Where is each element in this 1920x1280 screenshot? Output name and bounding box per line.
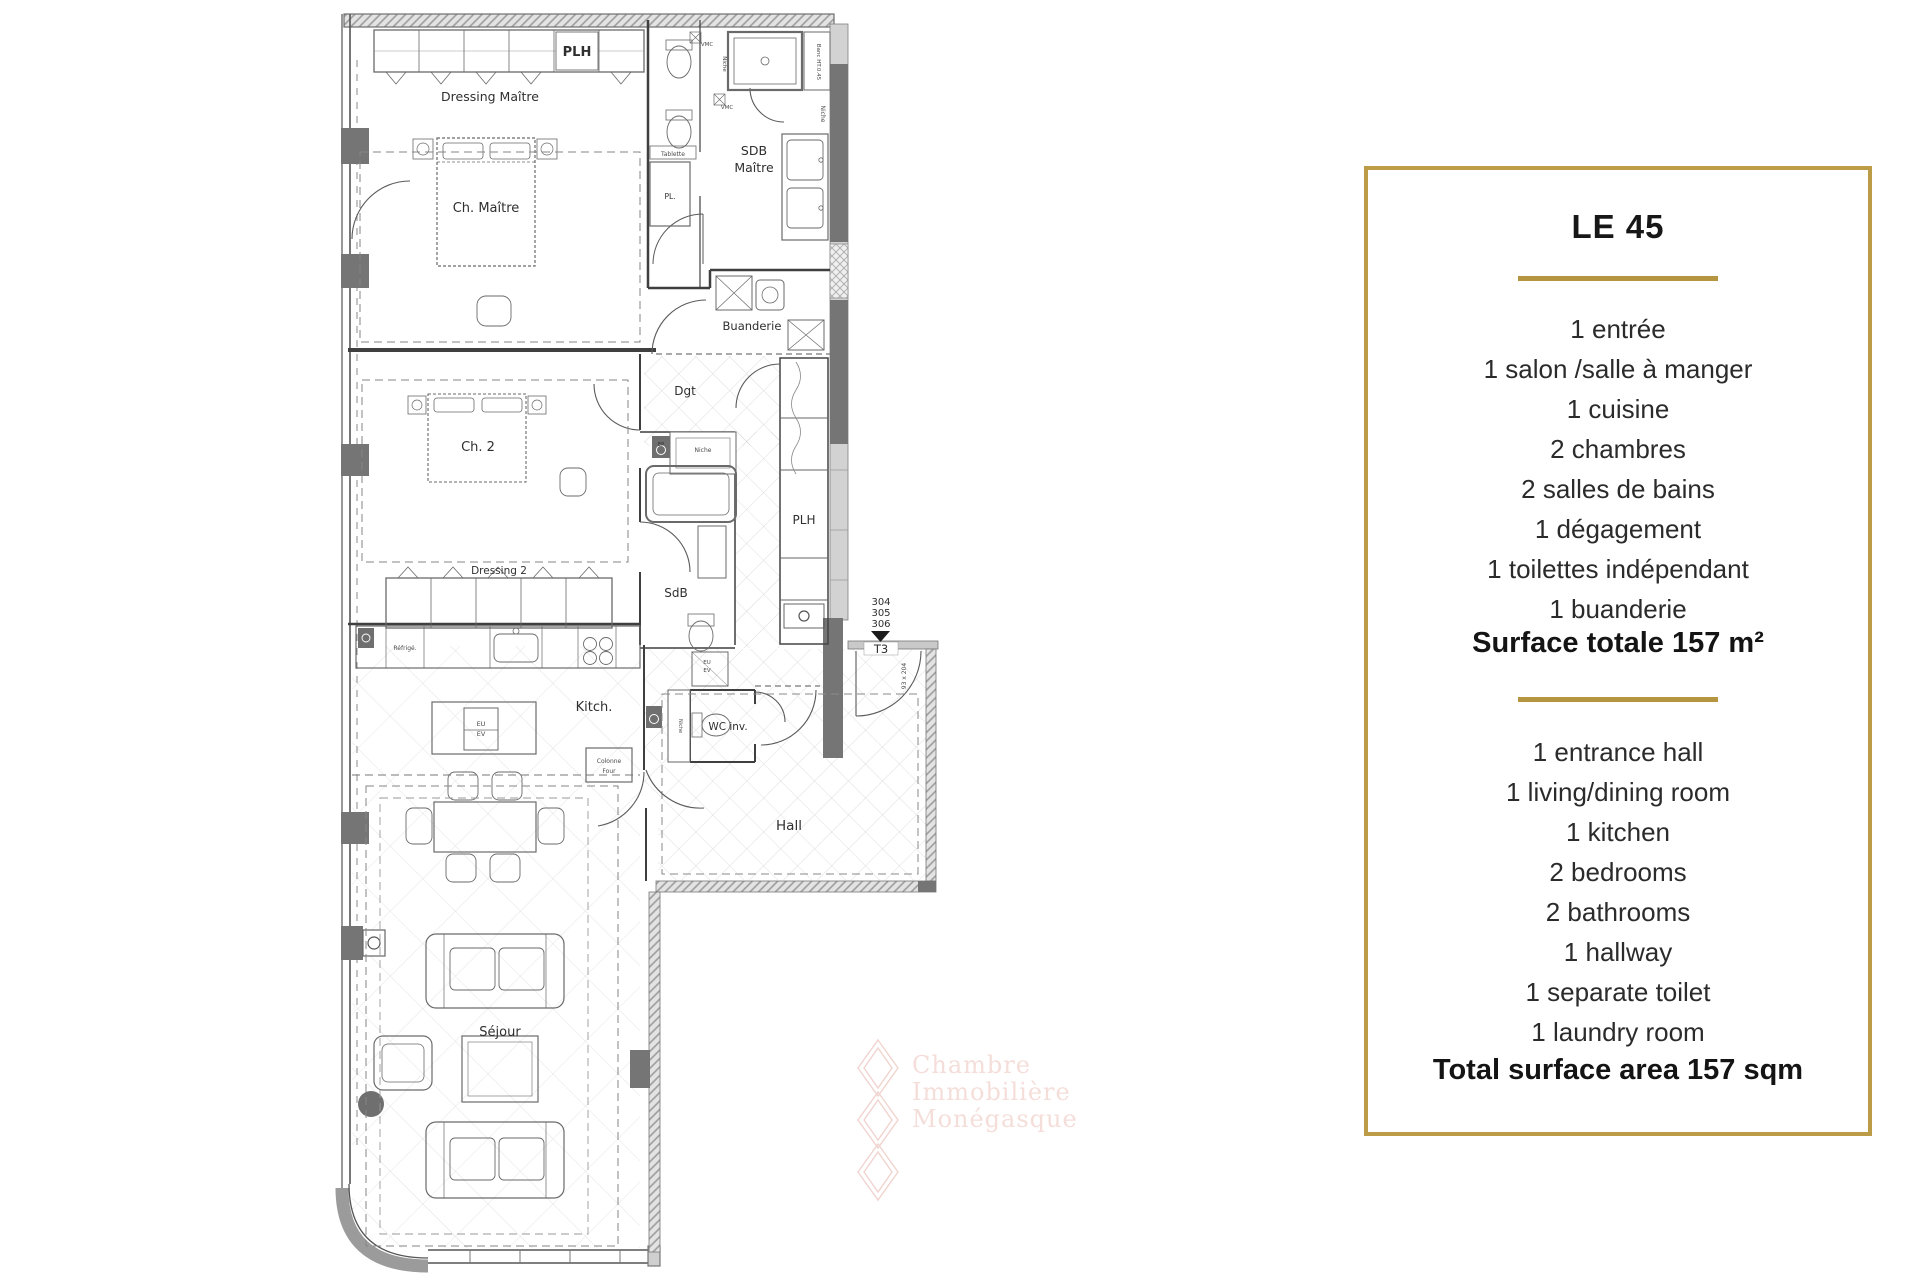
label-ev: EV — [477, 730, 486, 738]
room-item-en: 2 bedrooms — [1368, 852, 1868, 892]
label-plh-right: PLH — [793, 513, 816, 527]
room-item-en: 1 separate toilet — [1368, 972, 1868, 1012]
label-sdb: SdB — [664, 586, 687, 600]
label-kitch: Kitch. — [576, 700, 613, 715]
label-pl: PL. — [664, 192, 675, 201]
label-hall: Hall — [776, 818, 802, 834]
info-panel: LE 45 1 entrée 1 salon /salle à manger 1… — [1364, 166, 1872, 1136]
label-tablette: Tablette — [660, 151, 685, 158]
entrance-arrow-icon — [871, 631, 890, 642]
label-niche-sdb: Niche — [695, 447, 712, 454]
room-list-english: 1 entrance hall 1 living/dining room 1 k… — [1368, 732, 1868, 1052]
label-eu: EU — [477, 720, 486, 728]
label-ch-maitre: Ch. Maître — [453, 201, 520, 216]
label-niche-wall: Niche — [819, 106, 826, 123]
unit-number-306: 306 — [871, 619, 890, 630]
label-ep: EP — [658, 442, 664, 448]
label-dressing-maitre: Dressing Maître — [441, 89, 539, 104]
room-item-en: 1 laundry room — [1368, 1012, 1868, 1052]
label-banc: Banc HT.0.45 — [815, 44, 821, 81]
label-ch2: Ch. 2 — [461, 440, 495, 455]
room-item-fr: 1 dégagement — [1368, 509, 1868, 549]
gold-divider-bottom — [1518, 697, 1718, 702]
label-niche-hall: Niche — [677, 719, 683, 733]
room-item-fr: 2 salles de bains — [1368, 469, 1868, 509]
label-eu-shaft: EU — [703, 660, 711, 666]
floor-plan-svg: PLH Dressing Maître Ch. Maître VMC VMC T… — [330, 0, 1110, 1280]
residence-title: LE 45 — [1368, 208, 1868, 246]
room-item-fr: 1 cuisine — [1368, 389, 1868, 429]
label-refrige: Réfrigé. — [393, 645, 416, 652]
label-colonne: Colonne — [597, 758, 622, 765]
label-sdb-maitre-1: SDB — [741, 143, 767, 158]
label-sejour: Séjour — [479, 1025, 521, 1040]
watermark-line-3: Monégasque — [912, 1105, 1078, 1133]
label-vmc-1: VMC — [701, 42, 714, 48]
watermark: Chambre Immobilière Monégasque — [858, 1040, 1078, 1200]
room-item-en: 1 hallway — [1368, 932, 1868, 972]
watermark-logo-icon — [858, 1040, 898, 1200]
label-ev-shaft: EV — [703, 668, 710, 674]
label-niche-shower: Niche — [721, 56, 727, 72]
room-item-fr: 1 entrée — [1368, 309, 1868, 349]
room-item-en: 1 entrance hall — [1368, 732, 1868, 772]
surface-total-fr: Surface totale 157 m² — [1368, 623, 1868, 663]
label-vmc-2: VMC — [721, 105, 734, 111]
label-buanderie: Buanderie — [723, 319, 782, 333]
label-wc-inv: WC inv. — [708, 721, 747, 733]
room-item-fr: 2 chambres — [1368, 429, 1868, 469]
unit-number-304: 304 — [871, 597, 890, 608]
door-size: 93 x 204 — [901, 663, 908, 690]
label-plh-top: PLH — [563, 45, 592, 60]
label-dressing2: Dressing 2 — [471, 565, 527, 577]
room-item-en: 1 kitchen — [1368, 812, 1868, 852]
watermark-line-1: Chambre — [912, 1051, 1031, 1079]
room-item-en: 1 living/dining room — [1368, 772, 1868, 812]
floor-plan: PLH Dressing Maître Ch. Maître VMC VMC T… — [330, 0, 1110, 1280]
label-four: Four — [602, 768, 616, 775]
unit-type: T3 — [873, 642, 888, 656]
unit-number-305: 305 — [871, 608, 890, 619]
room-item-fr: 1 salon /salle à manger — [1368, 349, 1868, 389]
gold-divider-top — [1518, 276, 1718, 281]
room-list-french: 1 entrée 1 salon /salle à manger 1 cuisi… — [1368, 309, 1868, 629]
room-item-en: 2 bathrooms — [1368, 892, 1868, 932]
room-item-fr: 1 toilettes indépendant — [1368, 549, 1868, 589]
watermark-line-2: Immobilière — [912, 1078, 1071, 1106]
label-dgt: Dgt — [674, 384, 696, 398]
surface-total-en: Total surface area 157 sqm — [1368, 1050, 1868, 1090]
label-sdb-maitre-2: Maître — [734, 160, 774, 175]
flyer-page: PLH Dressing Maître Ch. Maître VMC VMC T… — [0, 0, 1920, 1280]
